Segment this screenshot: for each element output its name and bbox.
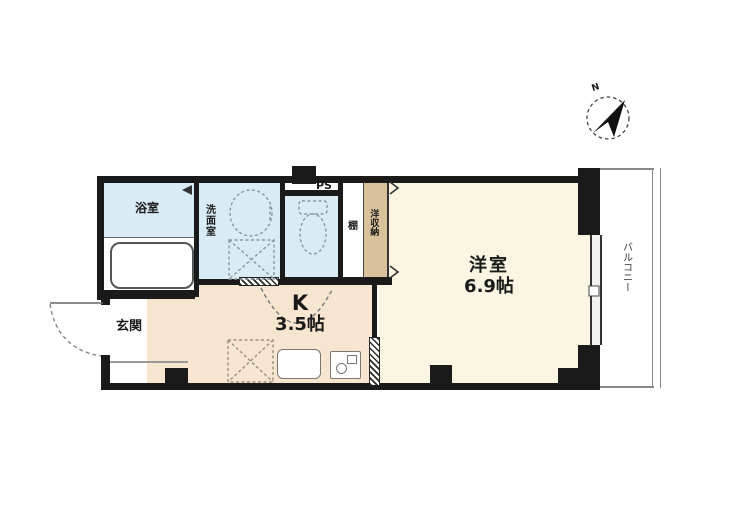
bottom-wall <box>101 383 600 390</box>
kitchen-sink <box>277 349 321 379</box>
top-wall <box>97 176 592 183</box>
kitchen-label: K <box>250 291 350 315</box>
toilet-floor <box>285 196 338 277</box>
entry-step-line <box>110 361 188 363</box>
closet-label: 洋収納 <box>368 209 378 236</box>
kitchen-label-group: K 3.5帖 <box>250 291 350 336</box>
washroom-right-wall <box>280 183 285 285</box>
entry-floor <box>110 299 147 383</box>
gas-stove <box>330 351 361 379</box>
entry-wall-stub <box>101 297 110 305</box>
bathroom-label: 浴室 <box>118 202 176 216</box>
ps-pillar <box>292 166 316 184</box>
balcony-bottom-edge <box>600 386 654 388</box>
living-room-size-label: 6.9帖 <box>430 277 548 298</box>
balcony-top-edge <box>600 168 654 170</box>
balcony-window <box>590 235 602 345</box>
stove-grill-icon <box>347 355 357 364</box>
living-room-label: 洋室 <box>430 256 548 277</box>
compass-icon <box>587 97 629 139</box>
toilet-closet-bottom-wall <box>285 277 392 285</box>
balcony-label: バルコニー <box>620 242 632 292</box>
washroom-sliding-door <box>239 277 279 286</box>
pillar-bottom-right-foot <box>558 368 578 388</box>
left-wall-upper <box>97 176 104 300</box>
bathtub <box>110 242 194 289</box>
kitchen-living-divider <box>372 285 377 339</box>
closet-front-line <box>387 183 389 277</box>
floor-plan: 浴室 洗面室 PS 棚 洋収納 K 3.5帖 玄関 洋室 6.9帖 バルコニー … <box>0 0 742 510</box>
shelf-label: 棚 <box>345 221 361 233</box>
compass-north-label: N <box>591 82 601 94</box>
pillar-top-right <box>578 168 600 235</box>
entry-label: 玄関 <box>110 320 148 335</box>
toilet-top-wall <box>285 190 343 196</box>
bathroom-bottom-wall <box>97 290 195 299</box>
balcony-railing <box>652 168 661 388</box>
kitchen-size-label: 3.5帖 <box>250 315 350 336</box>
pillar-bottom-right <box>578 345 600 388</box>
stove-burner-icon <box>336 363 347 374</box>
ps-label: PS <box>316 180 332 193</box>
pillar-bottom-living <box>430 365 452 383</box>
kitchen-living-sliding-door <box>369 337 380 386</box>
washroom-label: 洗面室 <box>203 204 215 237</box>
pillar-bottom-kitchen <box>165 368 188 383</box>
toilet-right-wall <box>338 183 343 285</box>
living-room-label-group: 洋室 6.9帖 <box>430 256 548 297</box>
entry-door-arc <box>50 304 101 356</box>
